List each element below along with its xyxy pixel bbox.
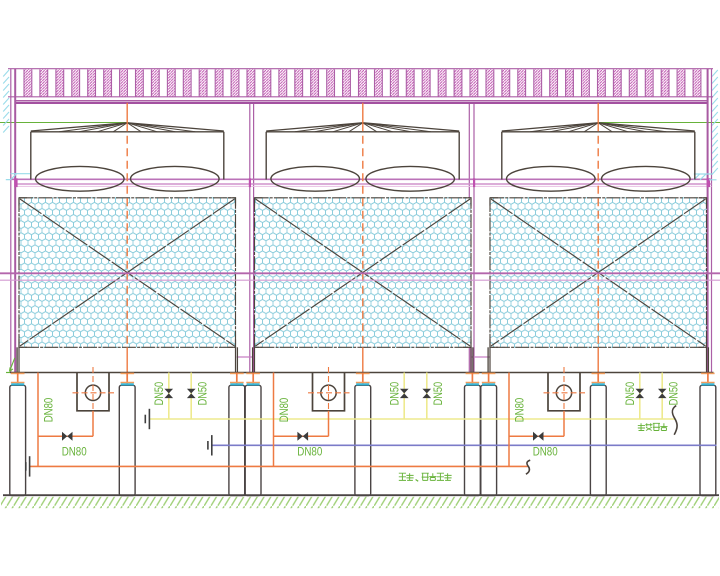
svg-text:DN50: DN50 [154,382,166,406]
svg-text:DN50: DN50 [668,382,680,406]
svg-text:DN80: DN80 [515,398,527,423]
svg-text:DN80: DN80 [533,446,558,458]
svg-text:DN50: DN50 [625,382,637,406]
svg-text:DN80: DN80 [44,398,56,423]
svg-text:DN80: DN80 [62,446,87,458]
svg-text:DN80: DN80 [297,446,322,458]
svg-text:DN50: DN50 [433,382,445,406]
svg-text:DN50: DN50 [389,382,401,406]
svg-text:DN80: DN80 [279,398,291,423]
svg-text:DN50: DN50 [198,382,210,406]
